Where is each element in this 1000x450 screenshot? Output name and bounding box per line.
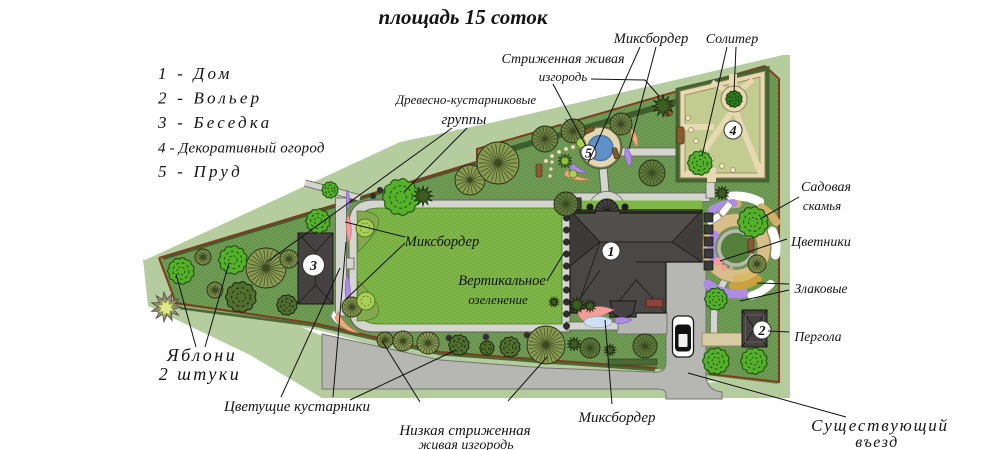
svg-text:1 - Дом: 1 - Дом — [158, 64, 233, 83]
svg-text:2 - Вольер: 2 - Вольер — [158, 89, 262, 108]
svg-text:Цветущие кустарники: Цветущие кустарники — [223, 399, 370, 415]
svg-text:въезд: въезд — [855, 434, 899, 450]
svg-text:Древесно-кустарниковые: Древесно-кустарниковые — [394, 92, 536, 107]
svg-text:5: 5 — [585, 147, 592, 162]
svg-text:Существующий: Существующий — [811, 416, 949, 435]
svg-text:4: 4 — [729, 124, 737, 139]
svg-text:Злаковые: Злаковые — [794, 281, 847, 296]
svg-text:Миксбордер: Миксбордер — [578, 410, 656, 426]
svg-text:Садовая: Садовая — [801, 180, 851, 195]
svg-text:Цветники: Цветники — [790, 235, 851, 250]
svg-text:2 штуки: 2 штуки — [159, 364, 242, 384]
svg-text:3 - Беседка: 3 - Беседка — [157, 113, 272, 132]
svg-text:Миксбордер: Миксбордер — [613, 31, 688, 47]
svg-text:2: 2 — [758, 324, 766, 339]
svg-text:Стриженная живая: Стриженная живая — [501, 52, 624, 67]
svg-text:3: 3 — [309, 259, 317, 274]
svg-text:5 - Пруд: 5 - Пруд — [158, 162, 243, 181]
svg-text:4 - Декоративный огород: 4 - Декоративный огород — [158, 141, 325, 157]
svg-text:озеленение: озеленение — [468, 292, 528, 307]
svg-text:скамья: скамья — [803, 198, 841, 213]
svg-text:группы: группы — [442, 112, 487, 128]
svg-text:Солитер: Солитер — [706, 32, 759, 47]
svg-text:Вертикальное: Вертикальное — [458, 273, 546, 289]
svg-text:площадь 15 соток: площадь 15 соток — [379, 5, 549, 29]
svg-text:изгородь: изгородь — [539, 69, 588, 84]
svg-text:Пергола: Пергола — [794, 329, 842, 344]
svg-text:Миксбордер: Миксбордер — [404, 234, 479, 250]
svg-text:Яблони: Яблони — [166, 345, 237, 365]
svg-text:1: 1 — [608, 245, 615, 260]
svg-text:живая изгородь: живая изгородь — [418, 438, 513, 450]
svg-text:Низкая стриженная: Низкая стриженная — [398, 423, 530, 439]
